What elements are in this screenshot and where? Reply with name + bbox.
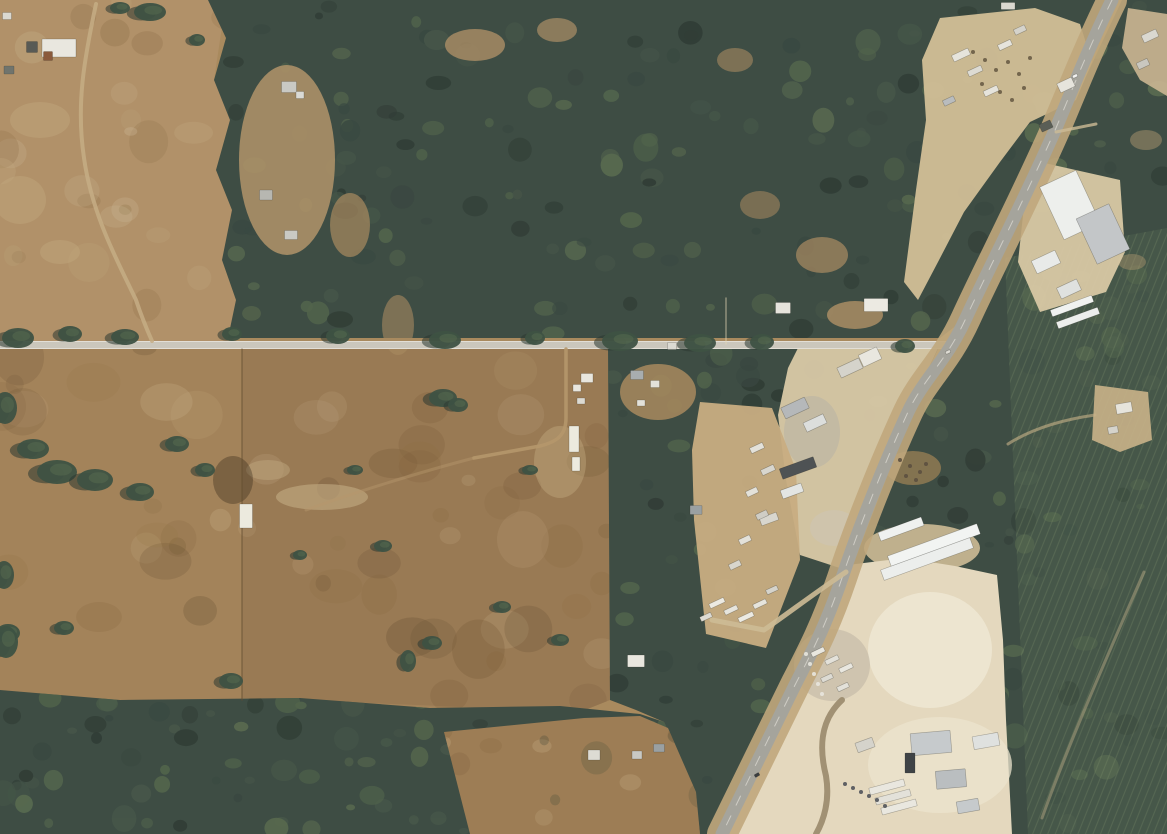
texture-blob <box>550 794 560 805</box>
tree <box>194 36 203 42</box>
texture-blob <box>709 111 720 121</box>
speck <box>851 786 855 790</box>
texture-blob <box>100 205 133 227</box>
tree <box>173 438 186 446</box>
texture-blob <box>232 220 252 235</box>
building-30 <box>1001 3 1015 10</box>
texture-blob <box>121 748 141 766</box>
speck <box>1022 86 1026 90</box>
texture-blob <box>390 185 414 209</box>
texture-blob <box>19 770 33 782</box>
forest-clearing <box>1130 130 1162 150</box>
tree <box>380 542 390 548</box>
building-17 <box>637 400 645 406</box>
texture-blob <box>1005 528 1014 536</box>
building-71 <box>910 730 952 755</box>
building-9 <box>581 374 593 383</box>
texture-blob <box>783 38 801 54</box>
texture-blob <box>379 228 393 243</box>
texture-blob <box>666 299 680 314</box>
forest-clearing <box>717 48 753 72</box>
texture-blob <box>212 777 221 785</box>
texture-blob <box>299 769 320 783</box>
texture-blob <box>462 196 487 216</box>
texture-blob <box>615 612 633 626</box>
texture-blob <box>505 22 524 43</box>
building-12 <box>569 426 579 452</box>
texture-blob <box>1003 668 1023 691</box>
texture-blob <box>782 81 803 99</box>
speck <box>1028 56 1032 60</box>
texture-blob <box>627 72 645 86</box>
texture-blob <box>985 542 994 548</box>
speck <box>883 804 887 808</box>
tree <box>527 467 536 472</box>
texture-blob <box>100 19 129 47</box>
texture-blob <box>937 476 948 487</box>
texture-blob <box>856 256 869 265</box>
texture-blob <box>295 702 306 710</box>
speck <box>904 474 908 478</box>
texture-blob <box>974 202 994 216</box>
texture-blob <box>555 100 572 110</box>
texture-blob <box>674 513 687 522</box>
field-dark-patch <box>213 456 253 504</box>
texture-blob <box>422 121 444 135</box>
texture-blob <box>620 212 642 228</box>
building-13 <box>572 457 580 471</box>
texture-blob <box>154 776 170 793</box>
speck <box>859 790 863 794</box>
texture-blob <box>409 815 419 825</box>
forest-clearing <box>239 65 335 255</box>
texture-blob <box>1104 161 1116 174</box>
texture-blob <box>160 765 170 775</box>
speck <box>983 58 987 62</box>
tree <box>120 331 135 339</box>
texture-blob <box>393 729 406 737</box>
texture-blob <box>149 702 170 721</box>
texture-blob <box>421 218 433 225</box>
texture-blob <box>623 297 637 311</box>
speck <box>914 478 918 482</box>
building-18 <box>690 506 702 515</box>
texture-blob <box>633 243 655 259</box>
texture-blob <box>706 304 715 311</box>
texture-blob <box>887 199 903 212</box>
texture-blob <box>743 118 758 134</box>
building-10 <box>573 385 581 392</box>
speck <box>1017 72 1021 76</box>
building-68 <box>588 750 600 760</box>
texture-blob <box>12 251 26 263</box>
texture-blob <box>752 228 761 235</box>
texture-blob <box>620 774 642 790</box>
texture-blob <box>672 147 686 157</box>
texture-blob <box>691 720 703 728</box>
building-16 <box>668 343 677 350</box>
texture-blob <box>898 74 919 94</box>
speck <box>998 90 1002 94</box>
forest-clearing <box>740 191 780 219</box>
texture-blob <box>206 710 215 717</box>
texture-blob <box>131 785 151 803</box>
texture-blob <box>601 154 623 177</box>
building-8 <box>285 231 298 240</box>
texture-blob <box>174 122 213 144</box>
texture-blob <box>906 496 918 508</box>
texture-blob <box>603 90 619 102</box>
texture-blob <box>210 509 232 532</box>
texture-blob <box>67 363 121 402</box>
texture-blob <box>33 742 52 760</box>
texture-blob <box>702 776 712 784</box>
texture-blob <box>848 130 871 147</box>
building-7 <box>260 190 273 200</box>
tree <box>694 337 712 346</box>
texture-blob <box>140 543 192 580</box>
texture-blob <box>505 192 513 199</box>
texture-blob <box>111 82 138 105</box>
texture-blob <box>228 104 244 121</box>
texture-blob <box>112 805 137 832</box>
tree <box>438 392 453 401</box>
building-69 <box>632 751 642 759</box>
texture-blob <box>228 246 245 261</box>
texture-blob <box>91 732 102 744</box>
texture-blob <box>812 108 834 133</box>
texture-blob <box>324 289 339 303</box>
tree <box>532 333 543 340</box>
tree <box>902 341 913 348</box>
tree <box>66 328 79 336</box>
texture-blob <box>389 250 405 266</box>
building-4 <box>4 66 14 74</box>
texture-blob <box>849 175 869 188</box>
texture-blob <box>338 103 349 114</box>
texture-blob <box>947 507 968 524</box>
texture-blob <box>577 238 592 247</box>
tree <box>1 565 12 579</box>
texture-blob <box>346 804 355 810</box>
texture-blob <box>416 149 427 161</box>
texture-blob <box>67 727 77 733</box>
texture-blob <box>659 696 673 704</box>
tree <box>352 467 361 472</box>
tree <box>135 486 150 495</box>
texture-blob <box>136 523 178 548</box>
building-49 <box>1107 426 1118 435</box>
forest-clearing <box>330 193 370 257</box>
forest-clearing <box>796 237 848 273</box>
forest-clearing <box>537 18 577 42</box>
texture-blob <box>1094 140 1106 147</box>
tree <box>117 4 128 10</box>
texture-blob <box>736 365 760 387</box>
texture-blob <box>3 707 21 724</box>
texture-blob <box>989 400 1001 408</box>
tree <box>89 472 109 483</box>
texture-blob <box>684 30 698 40</box>
building-3 <box>3 13 12 20</box>
texture-blob <box>315 12 323 19</box>
texture-blob <box>327 311 353 327</box>
texture-blob <box>124 127 137 136</box>
texture-blob <box>528 87 553 108</box>
tree <box>455 400 466 407</box>
building-14 <box>631 371 644 380</box>
texture-blob <box>648 498 664 510</box>
texture-blob <box>652 650 673 672</box>
texture-blob <box>411 747 429 767</box>
speck <box>1006 60 1010 64</box>
texture-blob <box>244 777 254 784</box>
texture-blob <box>173 820 187 832</box>
texture-blob <box>359 786 384 805</box>
building-5 <box>282 82 297 93</box>
speck <box>908 464 912 468</box>
texture-blob <box>396 139 414 150</box>
texture-blob <box>146 227 170 243</box>
texture-blob <box>546 244 559 255</box>
pasture-pale-patch <box>40 240 80 264</box>
texture-blob <box>242 306 261 321</box>
forest-clearing <box>445 29 505 61</box>
texture-blob <box>76 602 122 632</box>
tree <box>499 603 509 609</box>
tree <box>229 329 240 336</box>
texture-blob <box>535 809 553 825</box>
texture-blob <box>376 166 392 178</box>
tree <box>298 552 306 557</box>
texture-blob <box>866 111 887 126</box>
texture-blob <box>377 105 397 119</box>
tree <box>758 336 771 344</box>
speck <box>867 794 871 798</box>
building-19 <box>776 303 791 314</box>
texture-blob <box>902 195 916 205</box>
tree <box>557 636 567 642</box>
texture-blob <box>855 29 880 55</box>
building-72 <box>935 769 966 790</box>
texture-blob <box>332 48 351 59</box>
texture-blob <box>846 97 854 105</box>
building-6 <box>296 92 304 99</box>
building-2 <box>44 52 53 61</box>
texture-blob <box>411 16 421 27</box>
texture-blob <box>690 100 711 114</box>
texture-blob <box>15 795 33 813</box>
speck <box>994 68 998 72</box>
texture-blob <box>627 36 643 48</box>
texture-blob <box>334 727 359 751</box>
texture-blob <box>340 120 360 142</box>
texture-blob <box>248 282 260 290</box>
texture-blob <box>620 582 639 594</box>
texture-blob <box>697 372 712 389</box>
texture-blob <box>911 311 931 331</box>
texture-blob <box>414 720 434 740</box>
speck <box>971 50 975 54</box>
building-70 <box>654 744 665 752</box>
speck <box>843 782 847 786</box>
texture-blob <box>404 276 423 290</box>
speck <box>924 462 928 466</box>
tree <box>12 331 30 341</box>
texture-blob <box>485 118 494 127</box>
tree <box>202 465 213 472</box>
texture-blob <box>174 729 198 746</box>
texture-blob <box>459 828 469 834</box>
texture-blob <box>144 498 162 513</box>
tree <box>144 6 162 15</box>
speck <box>898 458 902 462</box>
building-73 <box>905 753 915 773</box>
tree <box>405 653 414 664</box>
texture-blob <box>225 758 242 768</box>
texture-blob <box>666 555 678 564</box>
texture-blob <box>247 696 264 713</box>
building-11 <box>577 398 585 404</box>
texture-blob <box>480 738 502 753</box>
texture-blob <box>909 30 920 37</box>
texture-blob <box>131 31 162 55</box>
texture-blob <box>44 818 53 828</box>
field-bottom-center <box>444 716 700 834</box>
speck <box>875 798 879 802</box>
texture-blob <box>426 76 451 90</box>
texture-blob <box>667 48 680 63</box>
texture-blob <box>751 678 765 690</box>
tree <box>439 334 457 343</box>
texture-blob <box>595 255 615 271</box>
field-pale-streak <box>276 484 368 510</box>
tree <box>2 631 15 647</box>
texture-blob <box>223 56 244 68</box>
speck <box>1010 98 1014 102</box>
pasture-pale-patch <box>10 102 70 138</box>
texture-blob <box>277 716 303 740</box>
sand-industrial-core <box>868 592 992 708</box>
texture-blob <box>752 294 778 315</box>
texture-blob <box>642 178 656 186</box>
speck <box>980 82 984 86</box>
texture-blob <box>1109 92 1124 108</box>
texture-blob <box>568 69 584 85</box>
texture-blob <box>934 427 949 442</box>
texture-blob <box>545 201 563 213</box>
texture-blob <box>965 449 985 472</box>
texture-blob <box>321 1 337 13</box>
texture-blob <box>539 735 548 745</box>
texture-blob <box>618 410 628 417</box>
texture-blob <box>697 661 708 673</box>
texture-blob <box>234 722 248 732</box>
texture-blob <box>44 770 63 791</box>
speck <box>804 652 808 656</box>
sand-clearing-mid-right <box>1092 385 1152 452</box>
texture-blob <box>1004 536 1014 545</box>
building-15 <box>651 381 660 388</box>
texture-blob <box>641 133 658 147</box>
tree <box>227 675 240 683</box>
building-20 <box>864 299 888 312</box>
texture-blob <box>105 715 113 722</box>
texture-blob <box>640 479 653 490</box>
texture-blob <box>508 138 532 162</box>
speck <box>816 682 820 686</box>
texture-blob <box>884 158 905 181</box>
building-1 <box>27 42 38 53</box>
building-80 <box>240 504 253 528</box>
tree <box>429 638 440 645</box>
texture-blob <box>84 716 106 733</box>
texture-blob <box>502 125 513 133</box>
texture-blob <box>844 273 860 289</box>
speck <box>918 470 922 474</box>
aerial-imagery <box>0 0 1167 834</box>
tree <box>614 334 634 344</box>
tree <box>61 623 72 630</box>
texture-blob <box>141 818 153 829</box>
texture-blob <box>472 719 488 729</box>
texture-blob <box>345 757 354 766</box>
texture-blob <box>640 48 660 63</box>
texture-blob <box>183 596 217 626</box>
texture-blob <box>381 738 393 747</box>
texture-blob <box>187 266 211 290</box>
tree <box>50 464 72 476</box>
texture-blob <box>511 221 530 237</box>
tree <box>334 330 347 338</box>
speck <box>820 692 824 696</box>
texture-blob <box>271 760 297 781</box>
texture-blob <box>253 24 271 34</box>
texture-blob <box>357 757 375 767</box>
tree <box>27 442 45 452</box>
texture-blob <box>430 811 446 825</box>
texture-blob <box>552 302 567 315</box>
texture-blob <box>820 178 842 194</box>
satellite-map-canvas[interactable] <box>0 0 1167 834</box>
tree <box>1 397 14 413</box>
texture-blob <box>789 319 813 339</box>
texture-blob <box>877 82 896 103</box>
texture-blob <box>808 133 825 145</box>
texture-blob <box>129 120 168 163</box>
texture-blob <box>661 255 679 267</box>
texture-blob <box>993 491 1006 505</box>
building-67 <box>628 655 645 667</box>
texture-blob <box>182 706 198 724</box>
speck <box>812 672 816 676</box>
texture-blob <box>234 794 243 803</box>
texture-blob <box>307 301 329 324</box>
texture-blob <box>140 383 192 421</box>
texture-blob <box>789 60 811 82</box>
texture-blob <box>668 439 691 452</box>
texture-blob <box>684 242 701 258</box>
texture-blob <box>512 190 522 200</box>
speck <box>808 662 812 666</box>
